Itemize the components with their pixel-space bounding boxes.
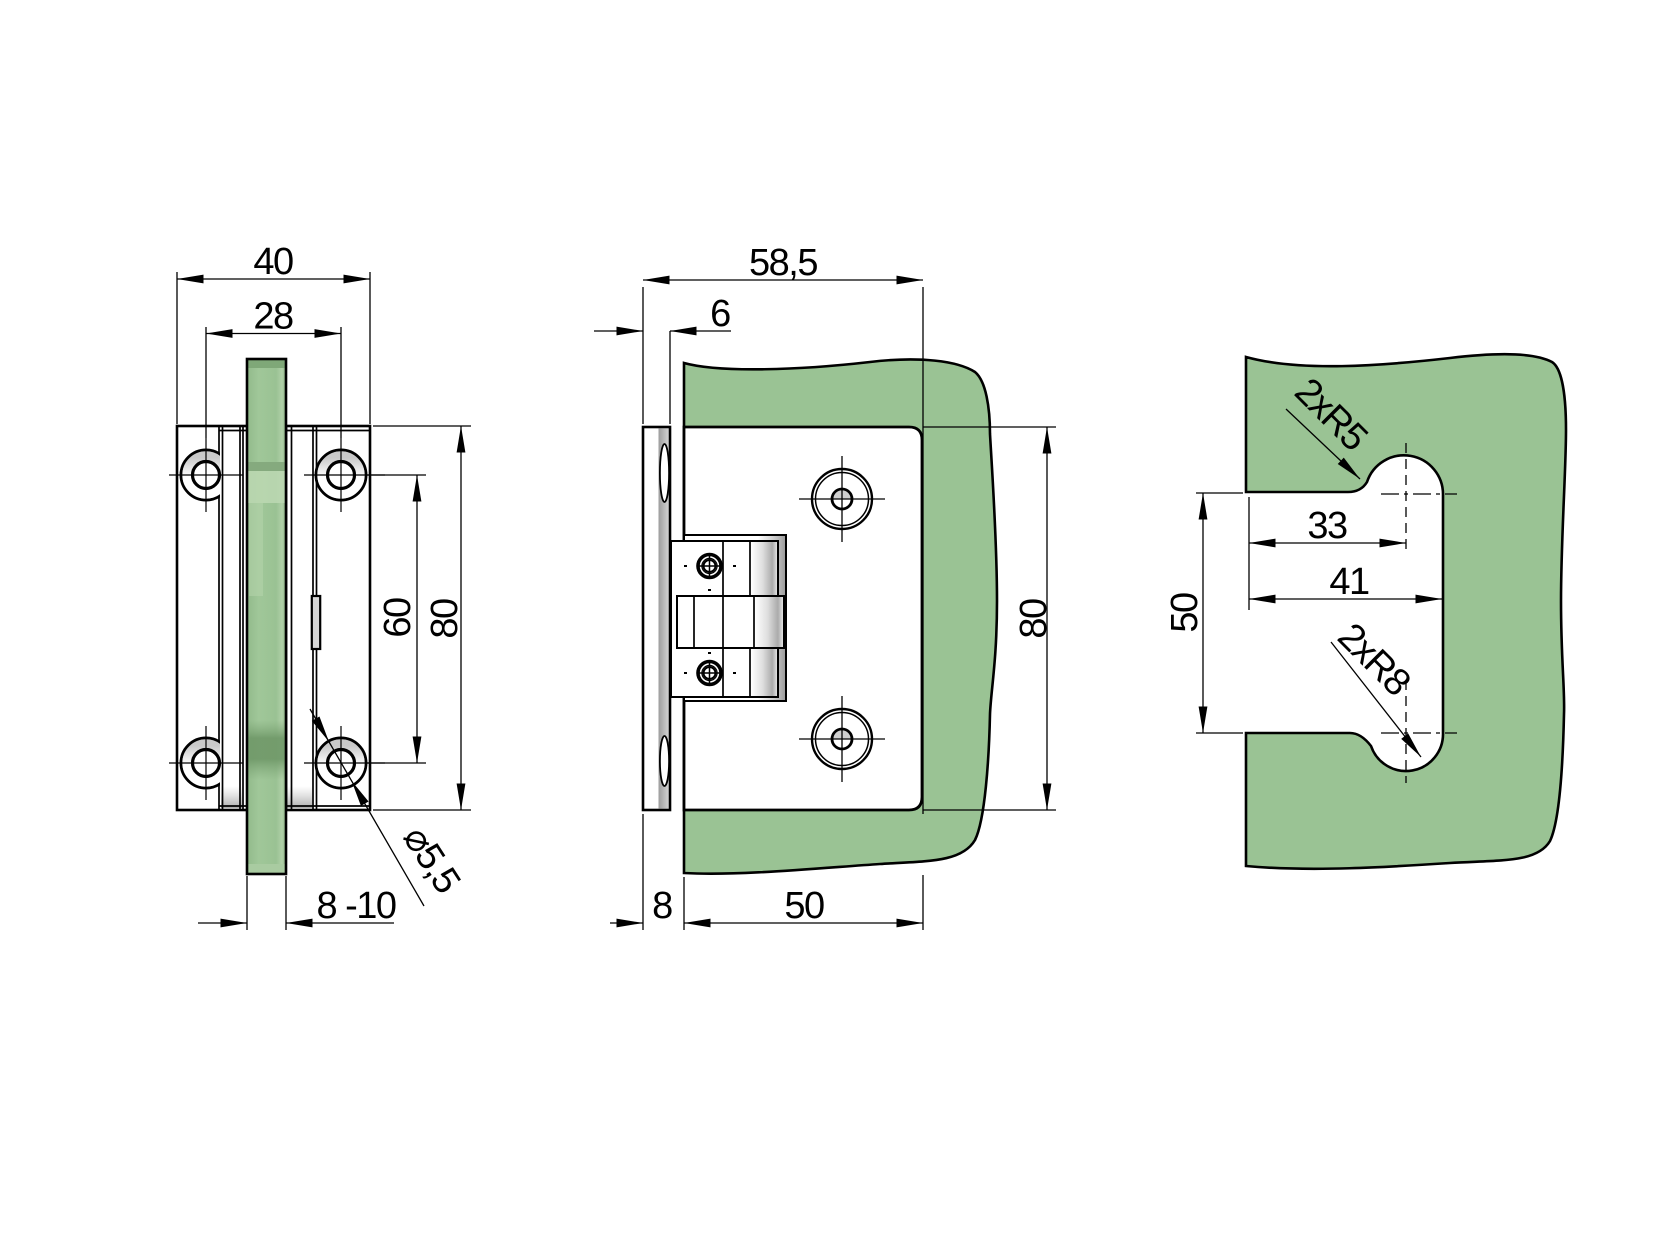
svg-text:58,5: 58,5 xyxy=(749,242,817,284)
svg-text:41: 41 xyxy=(1329,561,1369,603)
svg-text:28: 28 xyxy=(253,296,293,338)
svg-text:6: 6 xyxy=(710,293,730,335)
svg-text:50: 50 xyxy=(784,885,824,927)
svg-text:60: 60 xyxy=(377,598,419,638)
svg-text:50: 50 xyxy=(1164,593,1206,633)
svg-text:8 -10: 8 -10 xyxy=(316,885,395,927)
svg-text:80: 80 xyxy=(1013,599,1055,639)
svg-text:8: 8 xyxy=(652,885,672,927)
svg-text:40: 40 xyxy=(253,241,293,283)
svg-text:33: 33 xyxy=(1307,505,1347,547)
svg-text:80: 80 xyxy=(424,599,466,639)
